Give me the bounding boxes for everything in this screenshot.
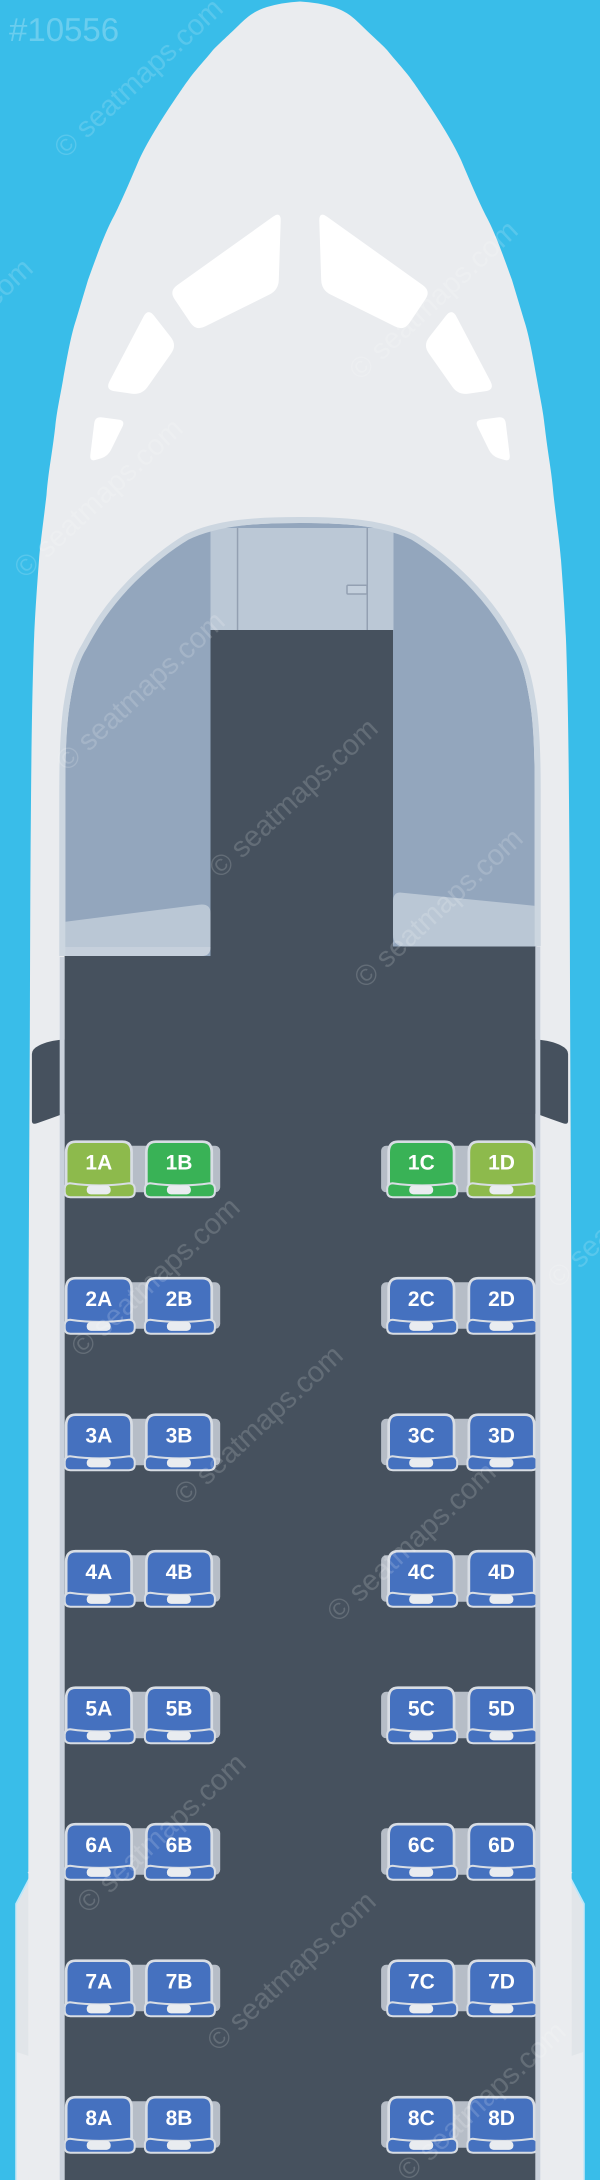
svg-text:1D: 1D — [488, 1152, 515, 1175]
svg-text:4C: 4C — [408, 1561, 435, 1584]
svg-text:2D: 2D — [488, 1288, 515, 1311]
svg-text:7D: 7D — [488, 1971, 515, 1994]
svg-text:4A: 4A — [85, 1561, 112, 1584]
svg-text:1A: 1A — [85, 1152, 112, 1175]
svg-text:#10556: #10556 — [9, 11, 119, 48]
svg-text:6A: 6A — [85, 1834, 112, 1857]
svg-text:3C: 3C — [408, 1425, 435, 1448]
svg-text:7A: 7A — [85, 1971, 112, 1994]
svg-text:3D: 3D — [488, 1425, 515, 1448]
svg-text:5B: 5B — [166, 1698, 193, 1721]
svg-text:3B: 3B — [166, 1425, 193, 1448]
svg-text:8A: 8A — [85, 2107, 112, 2130]
svg-text:6C: 6C — [408, 1834, 435, 1857]
svg-text:1C: 1C — [408, 1152, 435, 1175]
svg-text:2B: 2B — [166, 1288, 193, 1311]
svg-text:5C: 5C — [408, 1698, 435, 1721]
svg-text:6D: 6D — [488, 1834, 515, 1857]
svg-text:4B: 4B — [166, 1561, 193, 1584]
svg-text:7C: 7C — [408, 1971, 435, 1994]
svg-text:4D: 4D — [488, 1561, 515, 1584]
svg-text:5D: 5D — [488, 1698, 515, 1721]
svg-text:7B: 7B — [166, 1971, 193, 1994]
svg-text:2C: 2C — [408, 1288, 435, 1311]
svg-text:5A: 5A — [85, 1698, 112, 1721]
svg-text:1B: 1B — [166, 1152, 193, 1175]
svg-text:3A: 3A — [85, 1425, 112, 1448]
svg-text:8B: 8B — [166, 2107, 193, 2130]
